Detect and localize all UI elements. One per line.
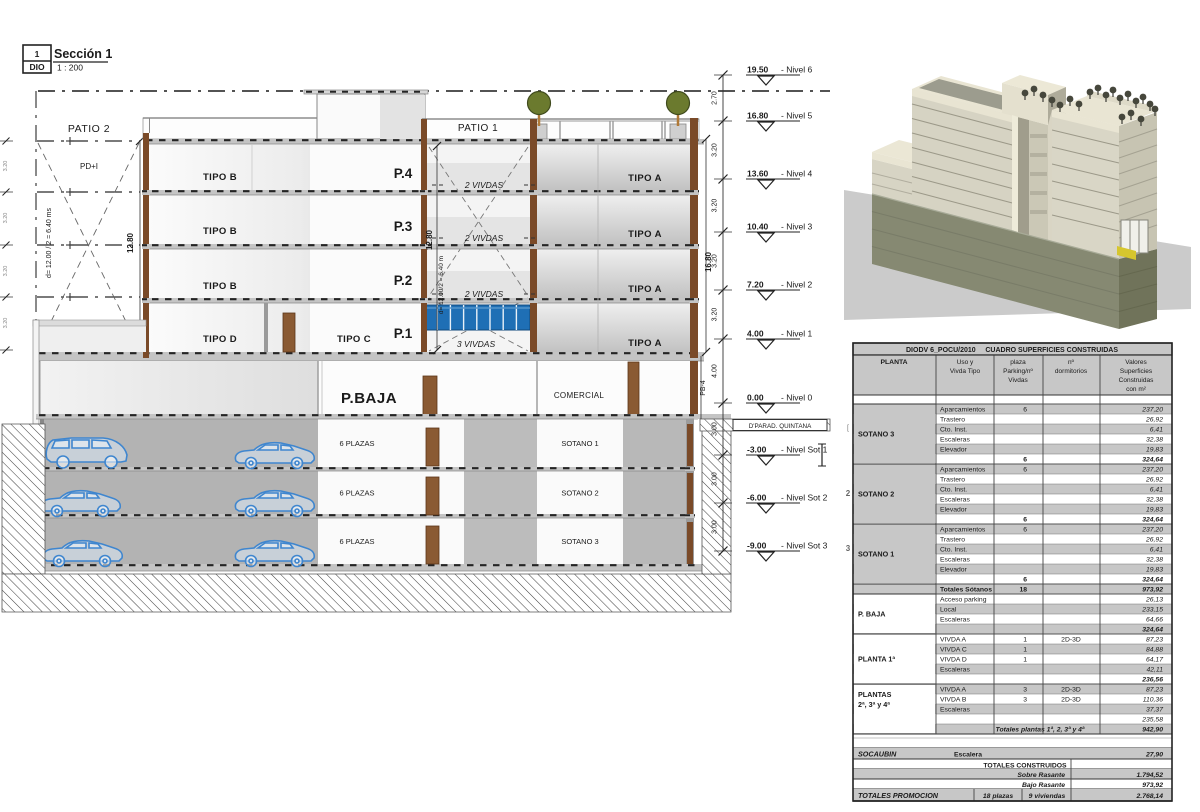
svg-text:PD+I: PD+I bbox=[80, 162, 98, 171]
svg-text:COMERCIAL: COMERCIAL bbox=[554, 391, 605, 400]
svg-text:26,92: 26,92 bbox=[1145, 537, 1163, 544]
svg-text:-6.00: -6.00 bbox=[747, 493, 767, 503]
svg-text:Escaleras: Escaleras bbox=[940, 617, 970, 624]
svg-text:6: 6 bbox=[1023, 527, 1027, 534]
svg-text:Elevador: Elevador bbox=[940, 507, 968, 514]
svg-text:7.20: 7.20 bbox=[747, 280, 764, 290]
svg-text:3.20: 3.20 bbox=[712, 143, 719, 157]
svg-text:Sobre Rasante: Sobre Rasante bbox=[1017, 772, 1065, 779]
svg-text:324,64: 324,64 bbox=[1142, 457, 1163, 464]
svg-text:Vivda Tipo: Vivda Tipo bbox=[950, 368, 981, 375]
svg-text:PLANTA: PLANTA bbox=[880, 359, 907, 366]
svg-text:Escaleras: Escaleras bbox=[940, 557, 970, 564]
svg-text:Superficies: Superficies bbox=[1120, 368, 1153, 375]
svg-text:6,41: 6,41 bbox=[1150, 547, 1163, 554]
svg-text:324,64: 324,64 bbox=[1142, 627, 1163, 634]
svg-text:DIODV 6_POCU/2010 CUADRO S: DIODV 6_POCU/2010 CUADRO SUPERFICIES CON… bbox=[906, 347, 1118, 354]
svg-text:2D-3D: 2D-3D bbox=[1061, 697, 1081, 704]
svg-text:6: 6 bbox=[1023, 517, 1027, 524]
svg-text:3.00: 3.00 bbox=[712, 472, 719, 486]
svg-text:P. BAJA: P. BAJA bbox=[858, 610, 885, 619]
svg-text:Uso y: Uso y bbox=[957, 359, 974, 366]
svg-text:3.00: 3.00 bbox=[712, 520, 719, 534]
svg-text:- Nivel 6: - Nivel 6 bbox=[781, 65, 812, 75]
svg-text:Elevador: Elevador bbox=[940, 567, 968, 574]
svg-text:0.00: 0.00 bbox=[747, 393, 764, 403]
svg-text:13.60: 13.60 bbox=[747, 169, 769, 179]
svg-text:VIVDA C: VIVDA C bbox=[940, 647, 967, 654]
svg-text:973,92: 973,92 bbox=[1142, 587, 1163, 594]
svg-text:con m²: con m² bbox=[1126, 386, 1147, 393]
svg-text:19,83: 19,83 bbox=[1146, 447, 1163, 454]
svg-text:6: 6 bbox=[1023, 467, 1027, 474]
svg-text:Trastero: Trastero bbox=[940, 417, 965, 424]
svg-text:- Nivel 2: - Nivel 2 bbox=[781, 280, 812, 290]
svg-text:TIPO D: TIPO D bbox=[203, 334, 237, 345]
svg-text:3: 3 bbox=[1023, 697, 1027, 704]
svg-text:18 plazas: 18 plazas bbox=[983, 793, 1013, 800]
svg-text:2D-3D: 2D-3D bbox=[1061, 637, 1081, 644]
svg-text:1: 1 bbox=[1023, 647, 1027, 654]
svg-text:Totales Sótanos: Totales Sótanos bbox=[940, 587, 992, 594]
svg-text:3.20: 3.20 bbox=[712, 308, 719, 322]
svg-text:87,23: 87,23 bbox=[1146, 637, 1163, 644]
svg-text:Cto. Inst.: Cto. Inst. bbox=[940, 547, 967, 554]
svg-text:3: 3 bbox=[1023, 687, 1027, 694]
svg-text:Bajo Rasante: Bajo Rasante bbox=[1022, 782, 1065, 789]
svg-text:324,64: 324,64 bbox=[1142, 577, 1163, 584]
svg-text:6,41: 6,41 bbox=[1150, 427, 1163, 434]
svg-text:PATIO 1: PATIO 1 bbox=[458, 123, 498, 134]
svg-text:SOTANO 2: SOTANO 2 bbox=[561, 489, 598, 498]
svg-text:18: 18 bbox=[1019, 587, 1027, 594]
svg-text:TIPO C: TIPO C bbox=[337, 334, 371, 345]
svg-text:d= 12.00/2 = 6.40 m: d= 12.00/2 = 6.40 m bbox=[438, 256, 445, 314]
svg-text:Cto. Inst.: Cto. Inst. bbox=[940, 487, 967, 494]
svg-text:VIVDA A: VIVDA A bbox=[940, 637, 967, 644]
svg-text:SOTANO 2: SOTANO 2 bbox=[858, 490, 894, 499]
svg-text:1: 1 bbox=[1023, 657, 1027, 664]
svg-text:6: 6 bbox=[1023, 407, 1027, 414]
svg-text:3 VIVDAS: 3 VIVDAS bbox=[457, 339, 496, 349]
svg-text:2: 2 bbox=[846, 489, 851, 498]
svg-text:42,11: 42,11 bbox=[1146, 667, 1163, 674]
svg-text:-9.00: -9.00 bbox=[747, 541, 767, 551]
svg-text:dormitorios: dormitorios bbox=[1055, 368, 1088, 375]
svg-text:3.20: 3.20 bbox=[3, 213, 9, 224]
svg-text:6: 6 bbox=[1023, 577, 1027, 584]
svg-text:Escaleras: Escaleras bbox=[940, 667, 970, 674]
svg-text:TIPO B: TIPO B bbox=[203, 226, 237, 237]
svg-text:- Nivel 5: - Nivel 5 bbox=[781, 111, 812, 121]
svg-text:VIVDA A: VIVDA A bbox=[940, 687, 967, 694]
svg-text:P.1: P.1 bbox=[394, 326, 413, 341]
svg-text:TIPO A: TIPO A bbox=[628, 338, 662, 349]
svg-text:2 VIVDAS: 2 VIVDAS bbox=[464, 180, 504, 190]
svg-text:Construidas: Construidas bbox=[1119, 377, 1154, 384]
svg-text:236,56: 236,56 bbox=[1141, 677, 1163, 684]
svg-text:10.40: 10.40 bbox=[747, 222, 769, 232]
svg-text:84,88: 84,88 bbox=[1146, 647, 1163, 654]
svg-text:3.20: 3.20 bbox=[712, 199, 719, 213]
svg-text:SOCAUBIN: SOCAUBIN bbox=[858, 750, 897, 759]
svg-text:Elevador: Elevador bbox=[940, 447, 968, 454]
svg-text:19,83: 19,83 bbox=[1146, 507, 1163, 514]
svg-text:P.3: P.3 bbox=[394, 219, 413, 234]
svg-text:2 VIVDAS: 2 VIVDAS bbox=[464, 233, 504, 243]
svg-text:- Nivel 4: - Nivel 4 bbox=[781, 169, 812, 179]
svg-text:Vivdas: Vivdas bbox=[1008, 377, 1028, 384]
svg-text:32,38: 32,38 bbox=[1146, 437, 1163, 444]
svg-text:3.20: 3.20 bbox=[3, 318, 9, 329]
svg-text:PATIO 2: PATIO 2 bbox=[68, 123, 110, 135]
svg-text:2ª, 3ª y 4ª: 2ª, 3ª y 4ª bbox=[858, 700, 890, 709]
svg-text:TIPO A: TIPO A bbox=[628, 229, 662, 240]
svg-text:87,23: 87,23 bbox=[1146, 687, 1163, 694]
svg-text:237,20: 237,20 bbox=[1141, 467, 1163, 474]
svg-text:TIPO B: TIPO B bbox=[203, 281, 237, 292]
svg-text:37,37: 37,37 bbox=[1146, 707, 1163, 714]
svg-text:32,38: 32,38 bbox=[1146, 557, 1163, 564]
svg-text:D'PARAD. QUINTANA: D'PARAD. QUINTANA bbox=[749, 423, 812, 430]
svg-text:973,92: 973,92 bbox=[1142, 782, 1163, 789]
svg-text:VIVDA D: VIVDA D bbox=[940, 657, 967, 664]
svg-text:-3.00: -3.00 bbox=[747, 445, 767, 455]
svg-text:9 viviendas: 9 viviendas bbox=[1029, 793, 1066, 800]
svg-text:110,36: 110,36 bbox=[1143, 697, 1164, 704]
svg-text:2 VIVDAS: 2 VIVDAS bbox=[464, 289, 504, 299]
svg-text:Escaleras: Escaleras bbox=[940, 707, 970, 714]
svg-text:64,66: 64,66 bbox=[1146, 617, 1163, 624]
svg-text:237,20: 237,20 bbox=[1141, 527, 1163, 534]
svg-text:Parking/nº: Parking/nº bbox=[1003, 368, 1033, 375]
svg-text:3.20: 3.20 bbox=[712, 254, 719, 268]
svg-text:- Nivel 3: - Nivel 3 bbox=[781, 222, 812, 232]
svg-text:2.70: 2.70 bbox=[712, 91, 719, 105]
svg-text:2D-3D: 2D-3D bbox=[1061, 687, 1081, 694]
svg-text:nº: nº bbox=[1068, 359, 1075, 366]
svg-text:6: 6 bbox=[1023, 457, 1027, 464]
svg-text:6,41: 6,41 bbox=[1150, 487, 1163, 494]
svg-text:Escaleras: Escaleras bbox=[940, 437, 970, 444]
svg-text:- Nivel 0: - Nivel 0 bbox=[781, 393, 812, 403]
svg-text:TIPO A: TIPO A bbox=[628, 284, 662, 295]
svg-text:SOTANO 3: SOTANO 3 bbox=[561, 537, 598, 546]
svg-text:TOTALES PROMOCION: TOTALES PROMOCION bbox=[858, 791, 939, 800]
svg-text:TIPO B: TIPO B bbox=[203, 172, 237, 183]
svg-text:6 PLAZAS: 6 PLAZAS bbox=[339, 537, 374, 546]
svg-text:19,83: 19,83 bbox=[1146, 567, 1163, 574]
svg-text:P.2: P.2 bbox=[394, 273, 413, 288]
svg-text:Trastero: Trastero bbox=[940, 537, 965, 544]
svg-text:PLANTAS: PLANTAS bbox=[858, 690, 892, 699]
svg-text:Trastero: Trastero bbox=[940, 477, 965, 484]
svg-text:1: 1 bbox=[35, 49, 40, 59]
svg-text:Valores: Valores bbox=[1125, 359, 1147, 366]
svg-text:3.00: 3.00 bbox=[712, 422, 719, 436]
svg-text:Aparcamientos: Aparcamientos bbox=[940, 527, 986, 534]
svg-text:19.50: 19.50 bbox=[747, 65, 769, 75]
svg-text:Cto. Inst.: Cto. Inst. bbox=[940, 427, 967, 434]
svg-text:DIO: DIO bbox=[29, 62, 45, 72]
svg-text:237,20: 237,20 bbox=[1141, 407, 1163, 414]
svg-text:[: [ bbox=[847, 425, 849, 432]
svg-text:4.00: 4.00 bbox=[747, 329, 764, 339]
svg-text:4.00: 4.00 bbox=[712, 364, 719, 378]
svg-text:2.768,14: 2.768,14 bbox=[1136, 793, 1164, 800]
svg-text:6 PLAZAS: 6 PLAZAS bbox=[339, 439, 374, 448]
svg-text:26,92: 26,92 bbox=[1145, 417, 1163, 424]
svg-text:324,64: 324,64 bbox=[1142, 517, 1163, 524]
svg-text:d= 12.00 / 2 = 6.40 ms: d= 12.00 / 2 = 6.40 ms bbox=[46, 207, 53, 278]
svg-text:PLANTA 1ª: PLANTA 1ª bbox=[858, 655, 895, 664]
svg-text:1: 1 bbox=[1023, 637, 1027, 644]
svg-text:27,90: 27,90 bbox=[1145, 752, 1163, 759]
svg-text:Escalera: Escalera bbox=[954, 752, 982, 759]
svg-text:32,38: 32,38 bbox=[1146, 497, 1163, 504]
svg-text:Acceso parking: Acceso parking bbox=[940, 597, 987, 604]
svg-text:1 : 200: 1 : 200 bbox=[57, 63, 83, 73]
svg-text:SOTANO 1: SOTANO 1 bbox=[561, 439, 598, 448]
svg-text:Aparcamientos: Aparcamientos bbox=[940, 407, 986, 414]
svg-text:SOTANO 1: SOTANO 1 bbox=[858, 550, 894, 559]
svg-text:Local: Local bbox=[940, 607, 957, 614]
svg-text:1.794,52: 1.794,52 bbox=[1137, 772, 1164, 779]
svg-text:26,92: 26,92 bbox=[1145, 477, 1163, 484]
svg-text:942,90: 942,90 bbox=[1142, 727, 1163, 734]
svg-text:Sección 1: Sección 1 bbox=[54, 47, 112, 61]
svg-text:3: 3 bbox=[846, 544, 851, 553]
svg-text:SOTANO 3: SOTANO 3 bbox=[858, 430, 894, 439]
svg-text:16.80: 16.80 bbox=[747, 111, 769, 121]
svg-text:12.80: 12.80 bbox=[126, 232, 135, 253]
svg-text:- Nivel Sot 2: - Nivel Sot 2 bbox=[781, 493, 828, 503]
svg-text:- Nivel 1: - Nivel 1 bbox=[781, 329, 812, 339]
svg-text:Totales plantas 1ª, 2, 3ª y 4ª: Totales plantas 1ª, 2, 3ª y 4ª bbox=[996, 727, 1085, 734]
svg-text:Escaleras: Escaleras bbox=[940, 497, 970, 504]
svg-text:64,17: 64,17 bbox=[1146, 657, 1163, 664]
svg-text:12.80: 12.80 bbox=[425, 229, 434, 250]
svg-text:VIVDA B: VIVDA B bbox=[940, 697, 967, 704]
svg-text:TIPO A: TIPO A bbox=[628, 173, 662, 184]
svg-text:235,58: 235,58 bbox=[1141, 717, 1163, 724]
svg-text:P.4: P.4 bbox=[394, 166, 413, 181]
svg-text:3.20: 3.20 bbox=[3, 266, 9, 277]
svg-text:6 PLAZAS: 6 PLAZAS bbox=[339, 489, 374, 498]
svg-text:3.20: 3.20 bbox=[3, 161, 9, 172]
svg-text:Aparcamientos: Aparcamientos bbox=[940, 467, 986, 474]
svg-text:26,13: 26,13 bbox=[1145, 597, 1163, 604]
svg-text:plaza: plaza bbox=[1010, 359, 1026, 366]
svg-text:- Nivel Sot 1: - Nivel Sot 1 bbox=[781, 445, 828, 455]
svg-text:P.BAJA: P.BAJA bbox=[341, 390, 397, 407]
svg-text:233,15: 233,15 bbox=[1141, 607, 1163, 614]
svg-text:- Nivel Sot 3: - Nivel Sot 3 bbox=[781, 541, 828, 551]
